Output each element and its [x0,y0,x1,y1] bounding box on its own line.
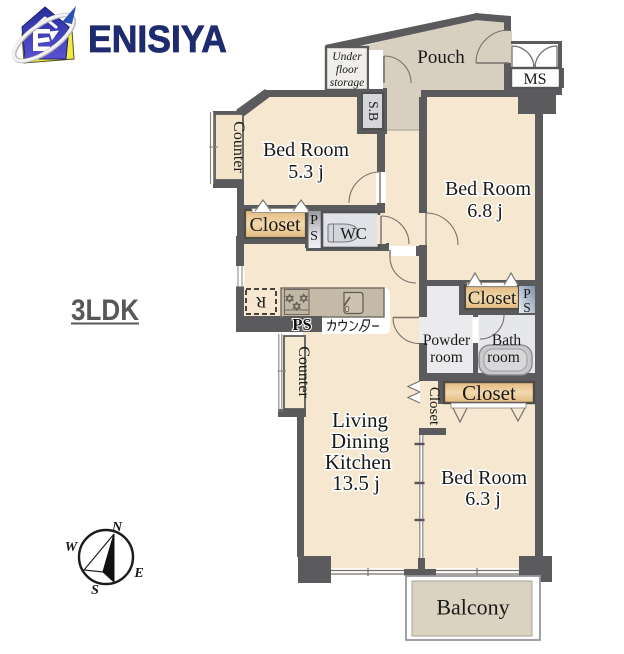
svg-text:Balcony: Balcony [436,595,509,620]
svg-text:MS: MS [523,71,546,88]
svg-text:Closet: Closet [426,387,442,426]
svg-text:room: room [430,349,463,366]
svg-text:Bed Room: Bed Room [441,467,528,489]
svg-text:Under: Under [332,51,362,63]
svg-text:R: R [255,293,266,310]
svg-text:S: S [310,229,318,244]
svg-text:E: E [133,566,143,581]
svg-text:PS: PS [292,315,311,334]
svg-text:W: W [65,540,79,555]
svg-text:Closet: Closet [249,214,301,236]
svg-text:Counter: Counter [230,121,247,173]
svg-text:Bath: Bath [492,332,522,349]
svg-text:6.8 j: 6.8 j [467,200,503,222]
svg-text:room: room [487,349,520,366]
svg-text:S.B: S.B [366,101,381,121]
svg-text:13.5 j: 13.5 j [332,471,380,495]
svg-text:Closet: Closet [468,288,517,309]
svg-text:P: P [523,286,531,301]
svg-text:Bed Room: Bed Room [263,139,350,161]
svg-text:Pouch: Pouch [417,47,465,68]
svg-text:N: N [111,520,123,535]
svg-text:floor: floor [336,64,359,76]
svg-text:Bed Room: Bed Room [445,178,532,200]
svg-text:5.3 j: 5.3 j [288,161,324,183]
svg-text:S: S [91,583,99,598]
svg-text:WC: WC [340,224,367,243]
svg-text:ENISIYA: ENISIYA [88,19,227,61]
svg-text:Powder: Powder [423,332,471,349]
svg-text:Closet: Closet [462,381,516,405]
svg-text:storage: storage [330,77,365,89]
svg-text:P: P [310,213,318,228]
svg-text:6.3 j: 6.3 j [465,488,501,510]
svg-text:Counter: Counter [295,346,312,398]
svg-text:3LDK: 3LDK [71,294,139,327]
svg-text:S: S [523,300,531,315]
